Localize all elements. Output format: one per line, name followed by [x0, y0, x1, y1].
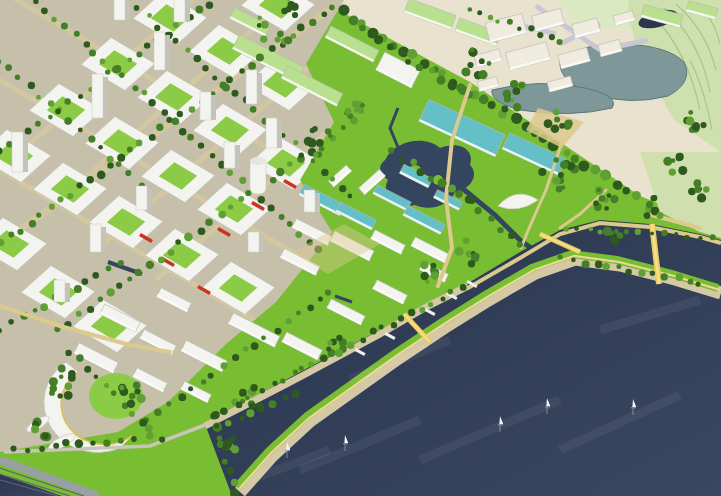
tree: [348, 194, 353, 199]
tree: [256, 54, 264, 62]
tree: [661, 273, 668, 280]
tree: [320, 355, 328, 363]
tree: [387, 43, 394, 50]
tree: [245, 396, 249, 400]
tree: [616, 264, 621, 269]
tree: [15, 75, 20, 80]
tree: [470, 47, 475, 52]
tree: [554, 157, 559, 162]
tree: [36, 213, 41, 218]
tower-side: [103, 77, 108, 118]
tree: [321, 169, 328, 176]
tree: [304, 137, 313, 146]
tree: [561, 185, 566, 190]
tree: [574, 226, 579, 231]
tree: [553, 109, 559, 115]
tree: [225, 420, 231, 426]
tree: [173, 38, 179, 44]
tree: [97, 171, 106, 180]
tree: [277, 31, 284, 38]
tree: [106, 266, 112, 272]
tree: [214, 424, 219, 429]
tree: [238, 196, 244, 202]
tree: [133, 85, 139, 91]
tree: [510, 80, 518, 88]
tree: [338, 5, 349, 16]
tree: [145, 425, 153, 433]
tree: [325, 128, 332, 135]
tree: [81, 278, 88, 285]
tree: [283, 395, 289, 401]
tree: [604, 206, 609, 211]
tree: [107, 162, 113, 168]
tree: [309, 19, 316, 26]
tree: [25, 127, 32, 134]
tree: [674, 232, 678, 236]
tree: [488, 15, 493, 20]
tree: [135, 269, 142, 276]
tree: [64, 391, 73, 400]
tree: [287, 161, 292, 166]
tree: [694, 186, 701, 193]
tree: [336, 335, 342, 341]
tree: [48, 115, 53, 120]
tree: [479, 95, 489, 105]
tree: [488, 101, 496, 109]
tree: [162, 109, 169, 116]
tree: [511, 113, 522, 124]
tree: [53, 443, 59, 449]
tree: [29, 220, 36, 227]
tree: [461, 67, 470, 76]
tree: [416, 64, 423, 71]
tree: [661, 230, 667, 236]
tree: [269, 45, 276, 52]
tree: [607, 193, 612, 198]
tree: [429, 67, 435, 73]
tree: [201, 379, 206, 384]
tree: [212, 76, 217, 81]
tree: [646, 201, 653, 208]
tree: [595, 261, 603, 269]
tower-side: [259, 235, 264, 252]
tree: [288, 1, 295, 8]
tree: [228, 204, 233, 209]
tree: [116, 283, 122, 289]
tree: [428, 302, 433, 307]
tree: [468, 260, 475, 267]
tree: [602, 263, 610, 271]
tree: [669, 168, 676, 175]
tree: [194, 55, 202, 63]
tree: [248, 62, 256, 70]
tree: [103, 439, 110, 446]
tree: [168, 249, 175, 256]
tree: [316, 139, 324, 147]
tree: [118, 438, 124, 444]
tree: [517, 27, 521, 31]
tree: [399, 157, 405, 163]
boat-reflection: [499, 425, 501, 432]
tree: [341, 125, 346, 130]
tree: [261, 335, 266, 340]
tree: [232, 90, 239, 97]
tree: [311, 159, 316, 164]
tree: [222, 459, 228, 465]
tree: [603, 227, 612, 236]
tree: [700, 122, 706, 128]
tree: [339, 185, 346, 192]
tree: [455, 247, 464, 256]
tree: [477, 10, 482, 15]
tree: [55, 109, 61, 115]
tree: [501, 106, 508, 113]
tree: [111, 390, 117, 396]
tree: [710, 234, 716, 240]
tree: [226, 76, 233, 83]
tree: [128, 58, 133, 63]
tree: [512, 87, 520, 95]
tree: [431, 271, 439, 279]
tree: [599, 195, 606, 202]
tree: [322, 11, 328, 17]
tree: [17, 229, 23, 235]
tree: [275, 36, 281, 42]
tree: [312, 126, 317, 131]
tree: [688, 279, 694, 285]
tree: [678, 166, 687, 175]
tree: [185, 48, 190, 53]
tree: [330, 176, 335, 181]
tree: [488, 215, 494, 221]
tree: [239, 416, 244, 421]
tree: [175, 239, 181, 245]
tree: [261, 21, 269, 29]
cylindrical-tower: [250, 157, 266, 194]
tree: [232, 354, 239, 361]
tree: [684, 235, 690, 241]
tree: [208, 373, 214, 379]
tree: [227, 170, 233, 176]
tree: [202, 65, 208, 71]
tree: [166, 401, 171, 406]
tree: [519, 82, 525, 88]
tree: [391, 322, 397, 328]
tree: [127, 400, 135, 408]
tree: [75, 439, 84, 448]
tree: [260, 36, 267, 43]
tree: [307, 304, 314, 311]
tree: [48, 100, 54, 106]
tower-side: [257, 73, 262, 104]
tree: [142, 90, 148, 96]
tree: [293, 140, 298, 145]
tree: [42, 433, 49, 440]
tree: [625, 269, 632, 276]
tree: [513, 103, 522, 112]
tree: [64, 98, 70, 104]
tree: [622, 187, 630, 195]
tree: [297, 24, 305, 32]
tree: [188, 386, 193, 391]
tree: [156, 124, 163, 131]
boat-reflection: [546, 407, 548, 414]
tree: [467, 62, 473, 68]
tree: [448, 184, 456, 192]
boat-reflection: [632, 408, 634, 415]
tree: [487, 61, 492, 66]
tree: [379, 325, 384, 330]
tree: [299, 153, 304, 158]
tree: [31, 425, 39, 433]
tree: [239, 389, 247, 397]
tree: [154, 408, 162, 416]
tree: [558, 172, 564, 178]
tree: [286, 318, 292, 324]
tree: [84, 366, 91, 373]
tower: [266, 118, 277, 148]
tree: [198, 142, 204, 148]
tree: [246, 409, 254, 417]
tree: [49, 390, 55, 396]
tree: [184, 233, 193, 242]
tree: [600, 170, 611, 181]
tree: [417, 168, 425, 176]
tree: [358, 108, 364, 114]
tree: [293, 369, 298, 374]
tree: [136, 140, 143, 147]
tree: [308, 361, 314, 367]
tree: [119, 72, 125, 78]
tree: [220, 408, 228, 416]
tree: [318, 297, 323, 302]
tree: [65, 382, 73, 390]
tree: [610, 195, 618, 203]
tree: [239, 68, 244, 73]
tree: [257, 23, 262, 28]
tree: [196, 6, 204, 14]
tree: [89, 50, 96, 57]
tree: [41, 7, 48, 14]
tree: [104, 383, 109, 388]
tree: [455, 190, 463, 198]
tower-side: [23, 135, 28, 172]
tree: [345, 108, 352, 115]
tree: [177, 111, 183, 117]
tree: [256, 402, 263, 409]
tree: [116, 161, 122, 167]
tree: [410, 159, 417, 166]
tree: [268, 204, 275, 211]
tree: [688, 110, 693, 115]
tower: [136, 186, 147, 210]
tree: [598, 230, 603, 235]
tree: [239, 177, 246, 184]
tree: [249, 402, 256, 409]
tree: [270, 177, 277, 184]
tree: [88, 136, 95, 143]
tree: [663, 157, 672, 166]
tree: [258, 16, 262, 20]
tree: [537, 32, 543, 38]
tree: [652, 195, 658, 201]
tree: [578, 161, 589, 172]
tree: [638, 270, 645, 277]
tree: [448, 289, 454, 295]
tree: [68, 370, 76, 378]
tree: [87, 306, 94, 313]
tree: [147, 13, 152, 18]
tree: [686, 117, 695, 126]
tree: [76, 311, 82, 317]
tree: [352, 101, 359, 108]
tower: [154, 32, 165, 70]
tower-side: [101, 227, 106, 252]
tree: [571, 155, 579, 163]
tree: [650, 232, 654, 236]
tree: [472, 253, 479, 260]
tree: [698, 236, 702, 240]
tree: [78, 127, 83, 132]
tree: [36, 95, 41, 100]
tree: [144, 42, 150, 48]
tree: [251, 342, 259, 350]
tree: [272, 381, 277, 386]
tree: [463, 238, 470, 245]
tree: [327, 340, 332, 345]
tree: [148, 99, 155, 106]
tree: [475, 207, 482, 214]
tree: [354, 108, 359, 113]
tree: [137, 394, 146, 403]
tree: [189, 106, 196, 113]
tree: [8, 232, 14, 238]
tree: [279, 214, 285, 220]
tree: [551, 124, 560, 133]
tree: [119, 385, 124, 390]
tree: [49, 204, 55, 210]
tree: [632, 191, 641, 200]
tree: [84, 41, 90, 47]
tree: [107, 288, 115, 296]
tree: [146, 432, 153, 439]
tree: [296, 311, 301, 316]
tree: [325, 289, 331, 295]
aerial-masterplan-scene: [0, 0, 721, 496]
tree: [159, 437, 165, 443]
tree: [280, 378, 285, 383]
tree: [67, 193, 73, 199]
tree: [503, 90, 512, 99]
tree: [593, 200, 599, 206]
tree: [557, 39, 563, 45]
tree: [260, 388, 265, 393]
tree: [40, 303, 48, 311]
tree: [398, 315, 404, 321]
tree: [349, 16, 359, 26]
tree: [676, 274, 684, 282]
tree: [179, 128, 187, 136]
tree: [478, 70, 487, 79]
tower-side: [147, 189, 152, 210]
tree: [127, 277, 132, 282]
tree: [25, 448, 30, 453]
tree: [146, 261, 154, 269]
tree: [624, 229, 629, 234]
tree: [508, 232, 515, 239]
tower-side: [315, 193, 320, 212]
tree: [74, 285, 82, 293]
tree: [589, 227, 594, 232]
tree: [226, 467, 234, 475]
tree: [635, 229, 641, 235]
tree: [118, 260, 124, 266]
tree: [250, 106, 257, 113]
tree: [94, 374, 99, 379]
tree: [299, 366, 304, 371]
tree: [62, 439, 69, 446]
tree: [497, 227, 503, 233]
tree: [64, 117, 72, 125]
tree: [370, 328, 377, 335]
tree: [105, 69, 110, 74]
boat-reflection: [286, 451, 288, 458]
tree: [281, 8, 287, 14]
tree: [399, 50, 406, 57]
tree: [511, 98, 515, 102]
tree: [158, 257, 165, 264]
tree: [39, 446, 45, 452]
tree: [129, 411, 135, 417]
tree: [10, 446, 16, 452]
tree: [609, 235, 617, 243]
tree: [374, 35, 383, 44]
tree: [559, 123, 565, 129]
tower: [246, 70, 257, 104]
tree: [149, 134, 156, 141]
tower-side: [235, 145, 240, 168]
tree: [676, 153, 683, 160]
tree: [284, 36, 292, 44]
tree: [76, 354, 84, 362]
tree: [571, 258, 576, 263]
tree: [28, 82, 35, 89]
tree: [236, 402, 243, 409]
tree: [58, 393, 63, 398]
tree: [292, 390, 300, 398]
tree: [133, 382, 141, 390]
tree: [507, 19, 513, 25]
tree: [59, 374, 64, 379]
tree: [420, 261, 428, 269]
tree: [419, 307, 425, 313]
tree: [210, 412, 217, 419]
tree: [154, 25, 160, 31]
tree: [275, 328, 282, 335]
tree: [78, 94, 83, 99]
tree: [51, 17, 56, 22]
tree: [590, 165, 600, 175]
tree: [359, 25, 366, 32]
tree: [33, 308, 38, 313]
tree: [134, 388, 140, 394]
tree: [222, 84, 230, 92]
tree: [206, 1, 214, 9]
tree: [92, 272, 99, 279]
tree: [407, 49, 417, 59]
tree: [388, 147, 394, 153]
tree: [549, 34, 555, 40]
